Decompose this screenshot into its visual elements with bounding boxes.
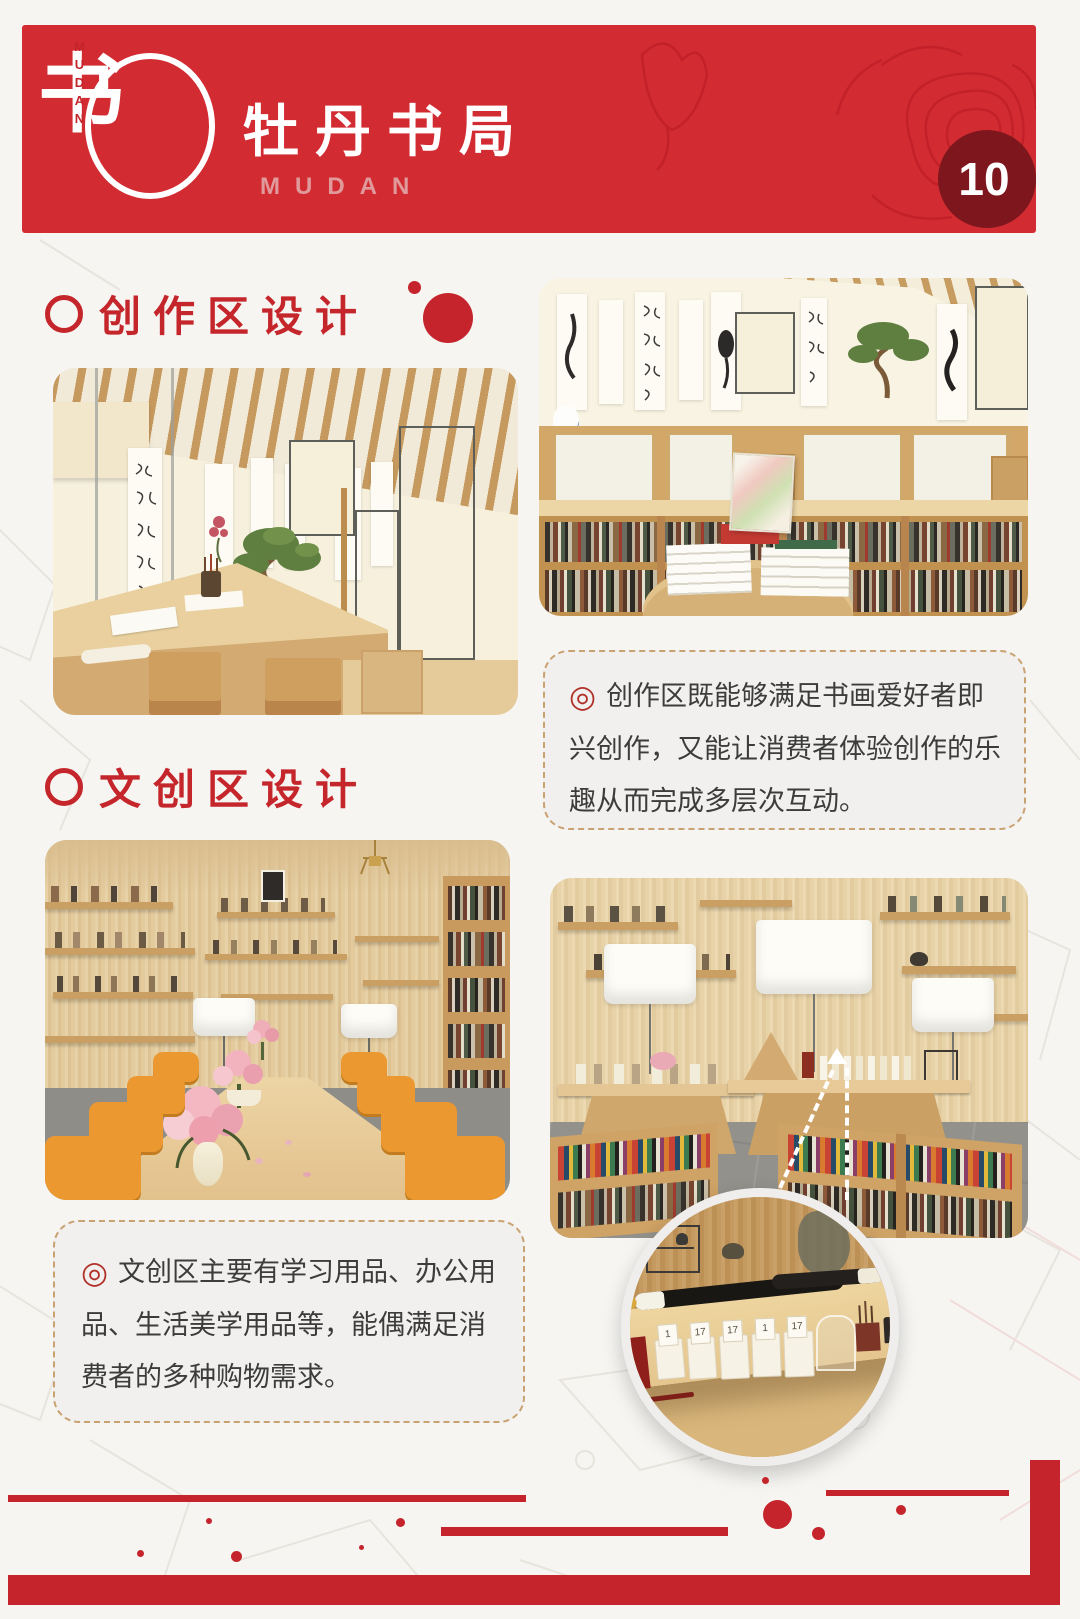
wall-shelf <box>45 902 173 909</box>
decor-line <box>441 1527 728 1536</box>
brush-pot <box>855 1322 880 1351</box>
scissors-rack <box>924 1050 958 1080</box>
photo-creation-area-tables <box>53 368 518 715</box>
decor-dot <box>396 1518 405 1527</box>
petal <box>255 1158 263 1164</box>
tall-metal-display-stand <box>975 286 1028 410</box>
drum-lamp <box>912 978 994 1032</box>
section-heading-cultural-area: 文创区设计 <box>45 756 369 817</box>
wall-shelf <box>355 936 439 942</box>
decor-dot <box>812 1527 825 1540</box>
wall-shelf <box>902 966 1016 974</box>
wall-shelf <box>880 912 1010 920</box>
section-title: 创作区设计 <box>99 283 369 344</box>
stool-frame <box>361 650 423 714</box>
decor-dot <box>423 293 473 343</box>
shelf-items <box>888 896 1006 912</box>
wall-shelf <box>45 948 195 955</box>
standing-art-book <box>729 452 795 533</box>
shelf-items <box>564 906 672 922</box>
shelf-items <box>213 940 337 954</box>
small-flowers <box>650 1052 676 1070</box>
bonsai-tree <box>831 306 941 402</box>
brochure-page: 书 MUDAN 牡丹书局 MUDAN 10 创作区设计 <box>0 0 1080 1619</box>
callout-cultural-area: ◎文创区主要有学习用品、办公用品、生活美学用品等，能偶满足消费者的多种购物需求。 <box>53 1220 525 1423</box>
photo-creation-area-bookshelves <box>539 278 1028 616</box>
bullseye-icon: ◎ <box>81 1255 108 1290</box>
shelf-items <box>57 976 183 992</box>
price-tag: 17 <box>787 1316 808 1339</box>
price-tag: 17 <box>690 1321 711 1344</box>
artwork-scroll-ink-figure <box>937 304 967 420</box>
brush-pot <box>201 571 221 597</box>
teapot <box>910 952 928 966</box>
callout-creation-area: ◎创作区既能够满足书画爱好者即兴创作，又能让消费者体验创作的乐趣从而完成多层次互… <box>543 650 1026 830</box>
orange-chair <box>405 1136 505 1200</box>
white-book-stack <box>761 547 850 597</box>
tall-metal-display-stand <box>399 426 475 660</box>
product-box: 17 <box>687 1336 718 1380</box>
shelf-items <box>55 932 185 948</box>
logo-vertical-brand-text: MUDAN <box>72 39 87 147</box>
stool <box>149 652 221 715</box>
bottom-bar <box>8 1575 1060 1605</box>
page-number: 10 <box>952 152 1016 206</box>
photo-cultural-area-table <box>45 840 510 1200</box>
photo-cultural-area-displays <box>550 878 1028 1238</box>
zoom-arrowhead <box>827 1048 847 1064</box>
callout-text: ◎文创区主要有学习用品、办公用品、生活美学用品等，能偶满足消费者的多种购物需求。 <box>55 1222 523 1403</box>
calligraphy-scroll <box>801 298 827 406</box>
stool-frame <box>991 456 1028 506</box>
price-tag: 17 <box>722 1320 743 1343</box>
detail-zoom-circle: 1 17 17 1 17 <box>621 1188 899 1466</box>
ring-bullet-icon <box>45 768 83 806</box>
decor-dot <box>359 1545 364 1550</box>
drum-lamp <box>604 944 696 1004</box>
brand-title: 牡丹书局 <box>243 87 531 168</box>
stool <box>265 658 341 715</box>
ring-bullet-icon <box>45 295 83 333</box>
metal-frame-lamp <box>735 312 795 394</box>
product-box: 17 <box>783 1330 815 1377</box>
decor-line <box>8 1495 526 1502</box>
callout-text: ◎创作区既能够满足书画爱好者即兴创作，又能让消费者体验创作的乐趣从而完成多层次互… <box>545 652 1024 827</box>
callout-body: 文创区主要有学习用品、办公用品、生活美学用品等，能偶满足消费者的多种购物需求。 <box>81 1257 496 1392</box>
metal-etagere <box>646 1225 700 1273</box>
wall-shelf <box>700 900 792 907</box>
orange-chair <box>45 1136 141 1200</box>
wall-shelf <box>53 992 193 999</box>
wall-scroll <box>599 300 623 404</box>
glass-display-dome <box>816 1315 856 1371</box>
table-display-items <box>576 1064 726 1084</box>
wall-shelf <box>558 922 678 930</box>
framed-photo <box>261 870 285 902</box>
seal-stamp <box>883 1317 895 1344</box>
decor-dot <box>206 1518 212 1524</box>
right-vertical-bar <box>1030 1460 1060 1605</box>
product-box: 17 <box>719 1334 750 1379</box>
shelf-items <box>51 886 161 902</box>
zoom-leader-line <box>845 1068 849 1200</box>
drum-lamp <box>341 1004 397 1038</box>
wall-shelf <box>45 1036 195 1043</box>
price-tag: 1 <box>755 1318 776 1341</box>
greenery <box>798 1211 850 1275</box>
decor-line <box>826 1490 1009 1496</box>
petal <box>285 1140 292 1145</box>
price-tag: 1 <box>657 1323 679 1347</box>
calligraphy-scroll <box>635 292 665 410</box>
artwork-scroll-ink-branch <box>557 294 587 410</box>
wall-shelf <box>363 980 439 986</box>
section-heading-creation-area: 创作区设计 <box>45 283 369 344</box>
decor-dot <box>231 1551 242 1562</box>
brand-subtitle: MUDAN <box>260 173 424 201</box>
wall-shelf <box>205 954 347 960</box>
product-box: 1 <box>751 1333 782 1378</box>
pendant-light <box>345 840 405 888</box>
petal <box>303 1172 311 1177</box>
a-frame-sign <box>744 1032 798 1080</box>
red-seal-box <box>802 1052 814 1078</box>
white-book-stack <box>666 543 752 596</box>
bullseye-icon: ◎ <box>569 679 596 714</box>
decor-dot <box>763 1500 792 1529</box>
header-banner: 书 MUDAN 牡丹书局 MUDAN <box>22 25 1036 233</box>
decor-dot <box>408 281 421 294</box>
product-box: 1 <box>654 1338 685 1380</box>
decor-dot <box>762 1477 769 1484</box>
teapot-on-stand <box>722 1243 744 1259</box>
green-book <box>775 540 837 549</box>
wall-scroll <box>679 300 703 400</box>
drum-lamp <box>756 920 872 994</box>
wall-shelf <box>217 912 335 918</box>
section-title: 文创区设计 <box>99 756 369 817</box>
decor-dot <box>137 1550 144 1557</box>
callout-body: 创作区既能够满足书画爱好者即兴创作，又能让消费者体验创作的乐趣从而完成多层次互动… <box>569 681 1001 816</box>
decor-dot <box>896 1505 906 1515</box>
